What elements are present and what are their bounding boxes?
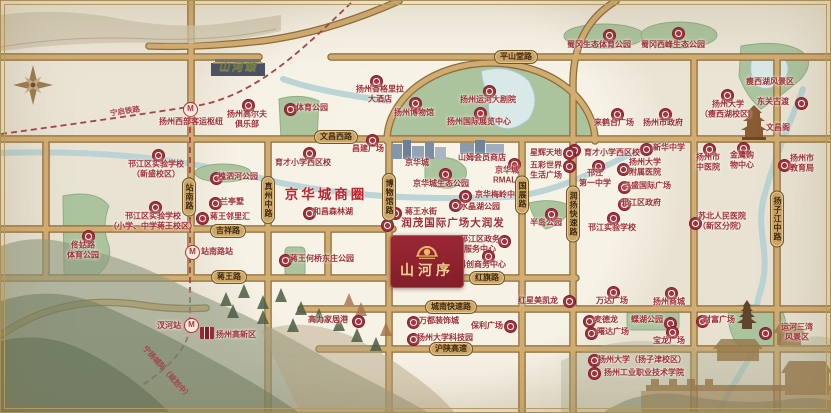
poi-label: 育才小学西区校 — [584, 148, 640, 158]
road-label: 平山堂路 — [494, 50, 538, 64]
poi-label: 金鹰购 物中心 — [730, 151, 754, 172]
road-label: 扬子江中路 — [770, 191, 784, 248]
poi-badge-icon — [504, 320, 517, 333]
poi-label: 京华城生态公园 — [413, 179, 469, 189]
poi-badge-icon — [585, 327, 598, 340]
poi-label: 星辉天地 — [530, 148, 562, 158]
railway-label: 宁扬城际（规划中） — [140, 343, 193, 401]
poi-label: 科创商务中心 — [458, 260, 506, 270]
poi-label: 水晶湖公园 — [460, 202, 500, 212]
poi-label: 蒋王水街 — [405, 207, 437, 217]
poi-label: 润茂国际广场大润发 — [401, 217, 505, 231]
poi-label: 扬州运河大剧院 — [460, 95, 516, 105]
poi-label: 昌建广场 — [352, 144, 384, 154]
poi-label: 邗江 第一中学 — [579, 169, 611, 190]
poi-label: 京华城 — [405, 158, 429, 168]
poi-label: 扬州高新区 — [216, 330, 256, 340]
business-circle-label: 京华城商圈 — [285, 183, 368, 203]
poi-label: 运河三湾风景区 — [781, 323, 814, 344]
project-logo: 山河序 — [390, 235, 464, 288]
poi-label: 扬州市 中医院 — [696, 153, 720, 174]
poi-label: 邗江区实验学校 （新盛校区） — [128, 160, 184, 181]
poi-label: 文昌阁 — [766, 123, 790, 133]
poi-badge-icon — [617, 163, 630, 176]
poi-label: 红星美凯龙 — [518, 296, 558, 306]
poi-label: 兰亭墅 — [220, 197, 244, 207]
poi-label: 半岛公园 — [530, 218, 562, 228]
poi-label: 保利广场 — [471, 321, 503, 331]
road-label: 站南路 — [182, 178, 196, 217]
poi-label: 体育公园 — [296, 103, 328, 113]
poi-label: 扬州市政府 — [643, 118, 683, 128]
road-label: 真州中路 — [261, 176, 275, 224]
poi-label: 麦德龙 — [594, 315, 618, 325]
poi-label: 山姆会员商店 — [458, 153, 506, 163]
poi-label: 邗江区政府 — [621, 198, 661, 208]
poi-label: 扬州大学 （瘦西湖校区） — [700, 100, 756, 121]
poi-label: 瘦西湖风景区 — [746, 77, 794, 87]
poi-label: 扬州工业职业技术学院 — [604, 368, 684, 378]
metro-station-icon: M — [184, 318, 199, 333]
project-logo-name: 山河序 — [400, 260, 454, 280]
poi-label: 高力家居港 — [308, 315, 348, 325]
poi-label: 蒋王邻里汇 — [210, 212, 250, 222]
road-label: 国展路 — [515, 176, 529, 215]
poi-label: 扬州市 教育局 — [790, 154, 814, 175]
marker-layer: M扬州西部客运枢纽扬州高尔夫 俱乐部体育公园扬州香格里拉 大酒店扬州博物馆扬州运… — [1, 1, 830, 412]
poi-label: 站南路站 — [201, 247, 233, 257]
poi-badge-icon — [196, 212, 209, 225]
poi-label: 扬州西部客运枢纽 — [159, 117, 223, 127]
poi-label: 汊河站 — [157, 321, 181, 331]
poi-label: 来鹤台广场 — [594, 118, 634, 128]
district-building-icon — [200, 327, 214, 339]
poi-badge-icon — [407, 316, 420, 329]
poi-badge-icon — [588, 367, 601, 380]
poi-label: 槐泗河公园 — [218, 172, 258, 182]
road-label: 文昌西路 — [314, 130, 358, 144]
poi-label: 扬州香格里拉 大酒店 — [356, 85, 404, 106]
poi-badge-icon — [795, 97, 808, 110]
poi-label: 蜀冈西峰生态公园 — [641, 40, 705, 50]
poi-badge-icon — [284, 103, 297, 116]
poi-label: 扬州商城 — [653, 297, 685, 307]
poi-label: 扬州大学（扬子津校区） — [598, 355, 686, 365]
poi-label: 蝶湖公园 — [631, 315, 663, 325]
road-label: 蒋王路 — [211, 270, 247, 284]
poi-label: 扬州大学 附属医院 — [629, 158, 661, 179]
project-emblem-icon — [412, 243, 442, 259]
poi-label: 邗江实验学校 — [588, 223, 636, 233]
poi-label: 曙达广场 — [597, 327, 629, 337]
poi-label: 蜀冈生态体育公园 — [567, 40, 631, 50]
road-label: 城南快速路 — [425, 300, 477, 314]
poi-label: 万达广场 — [596, 296, 628, 306]
road-label: 吉祥路 — [210, 224, 246, 238]
poi-label: 扬州国际展览中心 — [447, 117, 511, 127]
poi-label: 蒋王何桥东庄公园 — [290, 254, 354, 264]
poi-badge-icon — [672, 27, 685, 40]
railway-label: 宁启铁路 — [109, 103, 140, 118]
poi-badge-icon — [563, 160, 576, 173]
poi-label: 三盛国际广场 — [623, 181, 671, 191]
poi-badge-icon — [563, 147, 576, 160]
poi-label: 扬州博物馆 — [394, 108, 434, 118]
poi-badge-icon — [759, 327, 772, 340]
poi-badge-icon — [778, 159, 791, 172]
road-label: 润扬快速路 — [566, 186, 580, 243]
poi-label: 育才小学西区校 — [275, 158, 331, 168]
poi-label: 财富广场 — [703, 315, 735, 325]
poi-label: 扬州高尔夫 俱乐部 — [227, 110, 267, 131]
road-label: 红旗路 — [469, 271, 505, 285]
metro-station-icon: M — [185, 245, 200, 260]
road-label: 沪陕高速 — [429, 342, 473, 356]
poi-label: 佟姑路 体育公园 — [67, 241, 99, 262]
poi-label: 和昌森林湖 — [313, 207, 353, 217]
poi-label: 万都装饰城 — [419, 316, 459, 326]
poi-badge-icon — [563, 295, 576, 308]
metro-station-icon: M — [183, 102, 198, 117]
poi-label: 苏北人民医院 （新区分院） — [698, 212, 746, 233]
sister-project-logo: 山河颂 — [207, 57, 269, 74]
poi-label: 东关古渡 — [757, 97, 789, 107]
poi-label: 五彩世界 生活广场 — [530, 161, 562, 182]
poi-badge-icon — [352, 315, 365, 328]
location-map: M扬州西部客运枢纽扬州高尔夫 俱乐部体育公园扬州香格里拉 大酒店扬州博物馆扬州运… — [0, 0, 831, 413]
poi-badge-icon — [640, 143, 653, 156]
poi-label: 新华中学 — [653, 143, 685, 153]
sister-project-name: 山河颂 — [207, 58, 269, 74]
road-label: 博物馆路 — [382, 173, 396, 221]
poi-label: 宝龙广场 — [653, 336, 685, 346]
